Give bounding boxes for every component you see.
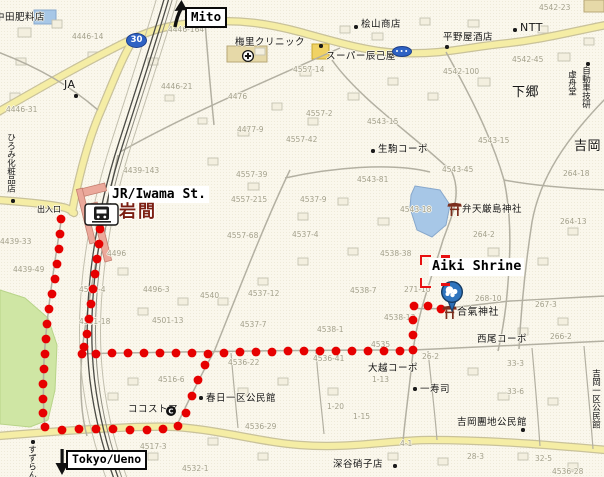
- pond: [410, 186, 450, 237]
- poi-dot: [31, 440, 34, 443]
- plot-number: 4536-29: [245, 423, 276, 431]
- plot-number: 4439-33: [0, 238, 31, 246]
- poi-dot: [199, 396, 202, 399]
- plot-number: 1-15: [353, 413, 370, 421]
- poi-label: ひろみ化粧品店: [6, 133, 15, 193]
- railway: [79, 0, 178, 477]
- poi-label: 虚舟堂: [567, 70, 576, 96]
- poi-dot: [445, 45, 448, 48]
- poi-label: 平野屋酒店: [443, 33, 493, 43]
- poi-dot: [319, 44, 322, 47]
- plot-number: 4538-7: [350, 287, 377, 295]
- station-platforms: [76, 183, 111, 262]
- shrine-highlight-dash: [441, 255, 450, 258]
- plot-number: 4536-22: [228, 359, 259, 367]
- poi-label: 吉岡團地公民館: [457, 418, 527, 428]
- poi-dot: [393, 464, 396, 467]
- poi-label: 深谷硝子店: [333, 460, 383, 470]
- plot-number: 4557-14: [293, 66, 324, 74]
- torii-icon: [442, 306, 456, 319]
- station-entrance-label: 出入口: [37, 206, 61, 214]
- poi-dot: [513, 28, 516, 31]
- building-clinic: [227, 46, 267, 62]
- plot-number: 4557-215: [231, 196, 267, 204]
- plot-number: 4536-41: [313, 355, 344, 363]
- svg-text:C: C: [168, 408, 173, 416]
- poi-label: NTT: [520, 22, 543, 33]
- plot-number: 4516-6: [158, 376, 185, 384]
- poi-dot: [586, 62, 589, 65]
- route-path-dots: [39, 215, 446, 435]
- plot-number: 4543-18: [400, 206, 431, 214]
- plot-number: 4501-13: [152, 317, 183, 325]
- plot-number: 4538-38: [380, 250, 411, 258]
- route-30-badge: 30: [126, 33, 147, 48]
- poi-dot: [521, 428, 524, 431]
- plot-number: 4543-45: [442, 166, 473, 174]
- map-icons: C: [85, 51, 462, 416]
- plot-number: 4446-14: [72, 33, 103, 41]
- map-base-layer: [0, 0, 604, 477]
- map-overlay-layer: C: [0, 0, 604, 477]
- plot-number: 4496: [107, 250, 126, 258]
- poi-label: 桧山商店: [361, 20, 401, 30]
- plot-number: 266-2: [550, 333, 572, 341]
- map-canvas: 4446-144446-1644446-2144764446-314557-14…: [0, 0, 604, 477]
- poi-label: 弁天厳島神社: [462, 205, 522, 215]
- plot-number: 4557-2: [306, 110, 333, 118]
- park-area: [0, 290, 57, 427]
- circle-c-icon: C: [166, 406, 176, 416]
- plot-number: 4439-143: [123, 167, 159, 175]
- building-tan: [584, 0, 604, 12]
- plot-number: 4538-1: [317, 326, 344, 334]
- shrine-english-label: Aiki Shrine: [429, 258, 524, 276]
- plot-number: 4543-15: [478, 137, 509, 145]
- plot-number: 4557-68: [227, 232, 258, 240]
- shrine-highlight-corner: [420, 278, 431, 288]
- plot-number: 4536-28: [552, 468, 583, 476]
- poi-label: 自動車技研: [581, 66, 590, 109]
- poi-label: 中田肥料店: [0, 13, 45, 23]
- poi-label: すずらん: [27, 445, 36, 477]
- poi-label: JA: [64, 79, 76, 90]
- plot-number: 267-3: [535, 301, 557, 309]
- plot-number: 4496-3: [143, 286, 170, 294]
- plot-number: 4532-1: [182, 465, 209, 473]
- station-name-japanese: 岩間: [119, 204, 157, 221]
- poi-label: 大越コーポ: [368, 364, 418, 374]
- plot-number: 32-5: [535, 455, 552, 463]
- plot-number: 4446-21: [161, 83, 192, 91]
- plot-number: 4537-7: [240, 321, 267, 329]
- gray-roads: [0, 22, 604, 449]
- plot-number: 4542-100: [443, 68, 479, 76]
- shrine-highlight-corner: [420, 255, 431, 265]
- poi-label: 吉岡一区公民館: [591, 369, 600, 429]
- plot-number: 4537-9: [300, 196, 327, 204]
- poi-label: 一寿司: [420, 385, 450, 395]
- plot-number: 26-2: [422, 353, 439, 361]
- poi-dot: [74, 94, 77, 97]
- plot-number: 4439-49: [13, 266, 44, 274]
- plot-number: 4543-81: [357, 176, 388, 184]
- plot-number: 33-3: [507, 360, 524, 368]
- train-station-icon: [85, 204, 118, 225]
- plot-number: 264-2: [473, 231, 495, 239]
- direction-north-label: Mito: [185, 7, 227, 28]
- plot-number: 4537-12: [248, 290, 279, 298]
- route-badge-small: [392, 46, 412, 57]
- plot-number: 4476: [228, 93, 247, 101]
- plot-number: 4557-39: [236, 171, 267, 179]
- poi-dot: [413, 387, 416, 390]
- plot-number: 264-13: [560, 218, 587, 226]
- plot-number: 4543-15: [367, 118, 398, 126]
- poi-label: ココストア: [128, 405, 178, 415]
- plot-number: 4542-45: [512, 56, 543, 64]
- plot-number: 4-1: [400, 440, 412, 448]
- plot-number: 4537-4: [292, 231, 319, 239]
- poi-dot: [371, 149, 374, 152]
- poi-label: 吉岡: [574, 140, 601, 153]
- poi-dot: [11, 199, 14, 202]
- poi-label: 西尾コーポ: [477, 335, 527, 345]
- plot-number: 4501-4: [79, 286, 106, 294]
- plot-number: 4446-31: [6, 106, 37, 114]
- plot-number: 4501-18: [79, 318, 110, 326]
- building-supermarket: [312, 44, 329, 59]
- hospital-icon: [243, 51, 254, 62]
- poi-label: 生駒コーポ: [378, 145, 428, 155]
- poi-dot: [354, 25, 357, 28]
- buildings: [10, 18, 594, 470]
- plot-number: 1-13: [372, 376, 389, 384]
- plot-number: 1-20: [327, 403, 344, 411]
- plot-number: 28-3: [467, 453, 484, 461]
- plot-number: 4477-9: [237, 126, 264, 134]
- poi-label: 春日一区公民館: [206, 394, 276, 404]
- plot-number: 4538-13: [384, 314, 415, 322]
- plot-number: 4535: [371, 341, 390, 349]
- plot-number: 264-18: [563, 170, 590, 178]
- poi-label: スーパー辰己屋: [326, 52, 396, 62]
- torii-icon: [447, 203, 461, 216]
- shrine-highlight-dash: [441, 283, 450, 286]
- plot-number: 33-6: [507, 388, 524, 396]
- plot-number: 4542-23: [539, 4, 570, 12]
- plot-number: 4540: [200, 292, 219, 300]
- poi-label: 下郷: [512, 86, 539, 99]
- poi-label: 梅里クリニック: [235, 38, 305, 48]
- plot-number: 268-10: [475, 295, 502, 303]
- station-english-label: JR/Iwama St.: [109, 186, 209, 203]
- pin-icon: [442, 282, 463, 311]
- plot-number: 4557-42: [286, 136, 317, 144]
- yellow-roads: [0, 21, 604, 450]
- direction-south-label: Tokyo/Ueno: [66, 450, 147, 470]
- poi-label: 合氣神社: [457, 308, 499, 318]
- building-blue: [34, 10, 56, 24]
